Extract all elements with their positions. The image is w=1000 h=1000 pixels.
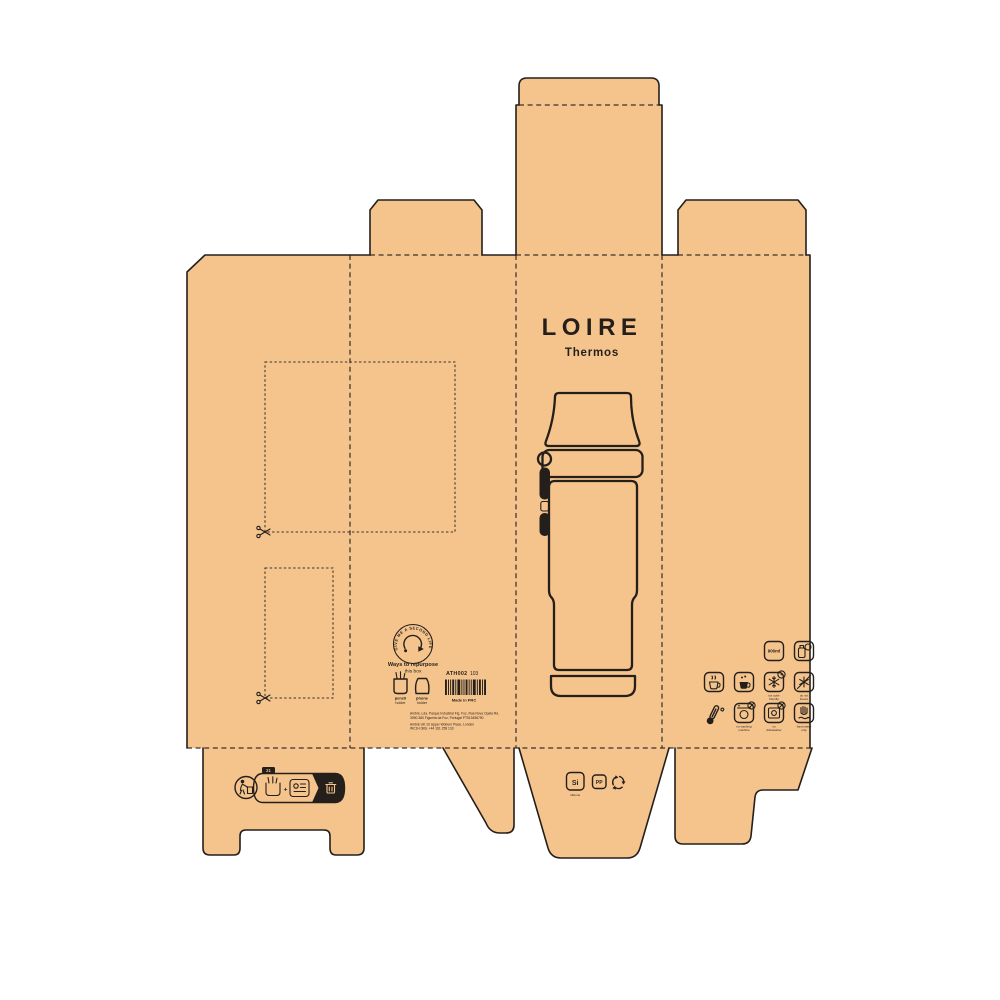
barcode-bar — [455, 680, 456, 696]
icon-caption: machine — [738, 728, 750, 732]
barcode-bar — [477, 680, 478, 696]
barcode-bar — [461, 680, 462, 696]
product-title: LOIRE — [542, 314, 643, 341]
barcode-bar — [482, 680, 483, 696]
bottom-flap-right — [675, 748, 812, 844]
repurpose-title: Ways to repurpose — [388, 662, 438, 668]
address-line: 3090-380 Figueira da Foz, Portugal PT513… — [410, 716, 484, 720]
barcode-bar — [464, 680, 465, 696]
barcode-bar — [473, 680, 476, 696]
repurpose-subtitle: this box — [405, 669, 422, 675]
icon-caption: friendly — [769, 697, 779, 701]
thermos-strap — [538, 453, 551, 537]
top-dust-flap-right — [678, 200, 806, 255]
use-1-label2: holder — [395, 701, 406, 705]
barcode-bar — [448, 680, 449, 696]
barcode-bar — [452, 680, 454, 696]
badge-plus: + — [780, 672, 783, 677]
icon-caption: dishwasher — [766, 728, 781, 732]
top-dust-flap-left — [370, 200, 482, 255]
barcode-bar — [466, 680, 468, 696]
icon-caption: freeze — [800, 697, 809, 701]
sku-suffix: 103 — [470, 671, 479, 677]
barcode-bar — [471, 680, 472, 696]
use-2-label2: holder — [417, 701, 428, 705]
barcode-bar — [450, 680, 451, 696]
use-1-label: pencil — [395, 696, 407, 701]
address-line: WC1H 0BS, +44 161 258 133 — [410, 727, 454, 731]
pp-symbol-text: PP — [596, 780, 603, 786]
use-2-label: phone — [416, 696, 429, 701]
made-in-label: Made in PRC — [452, 698, 477, 703]
bottom-tuck-flap — [519, 748, 669, 858]
packaging-dieline-canvas: LOIRE Thermos GIVE ME A SECOND LIFE — [0, 0, 1000, 1000]
barcode-bar — [484, 680, 486, 696]
recycling-code: 21 — [266, 768, 271, 773]
capacity-value: 900ml — [768, 649, 780, 654]
bottom-dust-flap-left — [443, 748, 514, 833]
product-subtitle: Thermos — [565, 347, 619, 359]
sku-code: ATH002 — [446, 671, 467, 677]
dieline-silhouette — [187, 78, 812, 858]
silicone-caption: silicone — [570, 793, 580, 797]
plus-sign: + — [284, 787, 288, 794]
barcode-bar — [445, 680, 447, 696]
barcode-bar — [479, 680, 481, 696]
icon-caption: only — [801, 728, 807, 732]
barcode-bar — [469, 680, 470, 696]
silicone-symbol-text: Si — [572, 780, 579, 787]
panel-body — [187, 255, 810, 748]
dieline-svg: LOIRE Thermos GIVE ME A SECOND LIFE — [0, 0, 1000, 1000]
barcode-bar — [457, 680, 460, 696]
